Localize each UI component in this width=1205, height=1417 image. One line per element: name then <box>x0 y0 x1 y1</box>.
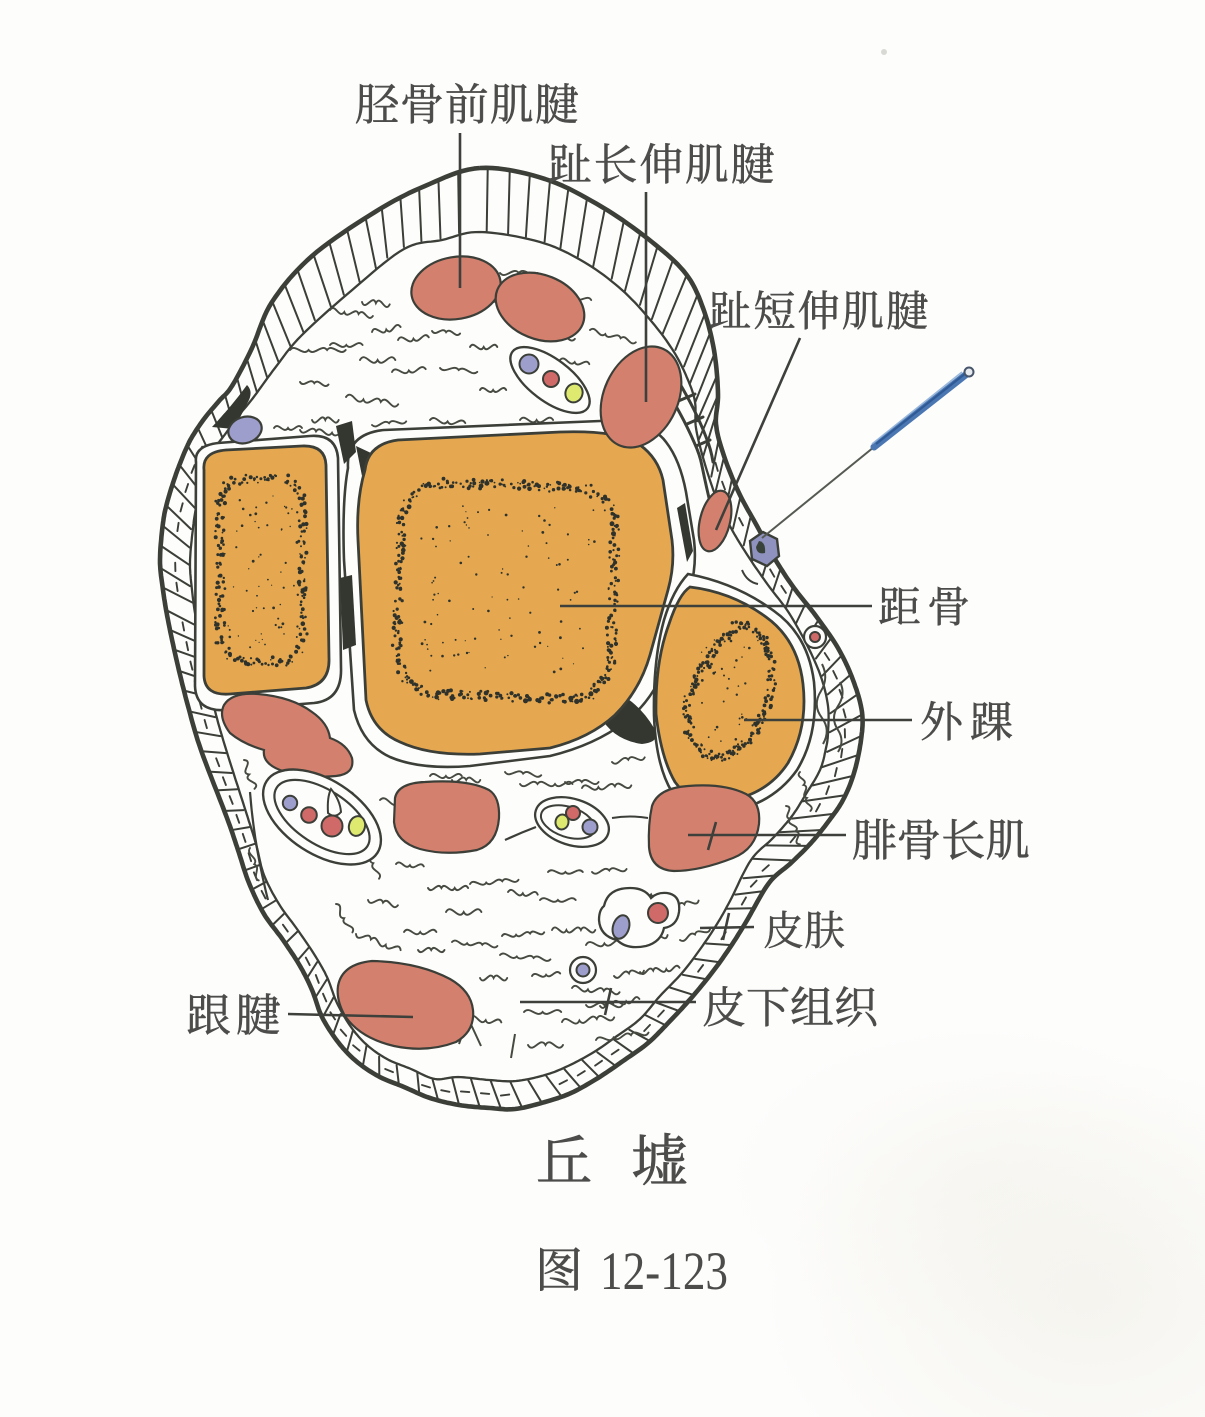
svg-text:12-123: 12-123 <box>600 1241 728 1301</box>
